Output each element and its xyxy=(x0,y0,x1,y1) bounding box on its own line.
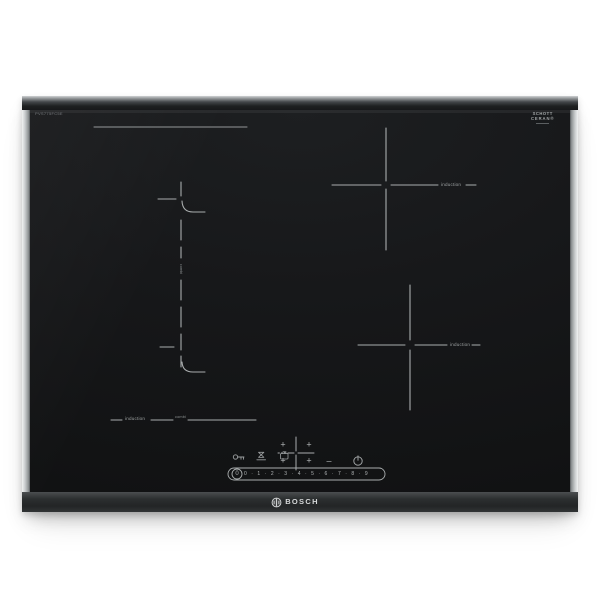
top-bevel-trim xyxy=(22,96,578,110)
schott-ceran-logo: SCHOTT CERAN® xyxy=(531,112,554,124)
zone-select-plus-rear-left[interactable]: + xyxy=(280,457,285,466)
zone-marking-right-bottom xyxy=(358,285,480,410)
zone-marking-left-flex xyxy=(158,182,205,372)
right-top-zone-label: induction xyxy=(441,182,461,187)
model-number-print: PVS775FC5E xyxy=(35,111,63,116)
zone-select-plus-rear-right[interactable]: + xyxy=(306,457,311,466)
left-zone-combi-label: combi xyxy=(175,415,186,419)
flex-zone-divider-label: combi xyxy=(179,264,183,274)
schott-ceran-line2: CERAN® xyxy=(531,117,554,122)
ceramic-glass-surface: PVS775FC5E SCHOTT CERAN® induction induc… xyxy=(30,110,570,492)
bosch-wordmark: BOSCH xyxy=(285,498,319,506)
induction-hob: PVS775FC5E SCHOTT CERAN® induction induc… xyxy=(22,96,578,512)
slider-level-keys[interactable]: 0 · 1 · 2 · 3 · 4 · 5 · 6 · 7 · 8 · 9 xyxy=(244,468,369,480)
key-icon[interactable] xyxy=(233,455,244,459)
front-edge-trim: BOSCH xyxy=(22,492,578,512)
right-bottom-zone-label: induction xyxy=(450,342,470,347)
zone-marking-right-top xyxy=(332,128,476,250)
right-side-trim xyxy=(570,110,578,492)
zone-select-plus-front-right[interactable]: + xyxy=(306,441,311,450)
product-photo: PVS775FC5E SCHOTT CERAN® induction induc… xyxy=(0,0,600,600)
minus-key[interactable]: – xyxy=(326,457,331,466)
left-side-trim xyxy=(22,110,30,492)
power-icon[interactable] xyxy=(354,456,362,465)
slider-off-key[interactable]: 0 xyxy=(235,471,238,477)
bosch-logo: BOSCH xyxy=(271,497,319,508)
zone-select-plus-front-left[interactable]: + xyxy=(280,441,285,450)
egg-timer-icon[interactable] xyxy=(257,452,266,460)
bosch-armature-icon xyxy=(271,497,282,508)
left-zone-induction-label: induction xyxy=(125,416,145,421)
schott-ceran-subtext-line xyxy=(536,123,549,124)
